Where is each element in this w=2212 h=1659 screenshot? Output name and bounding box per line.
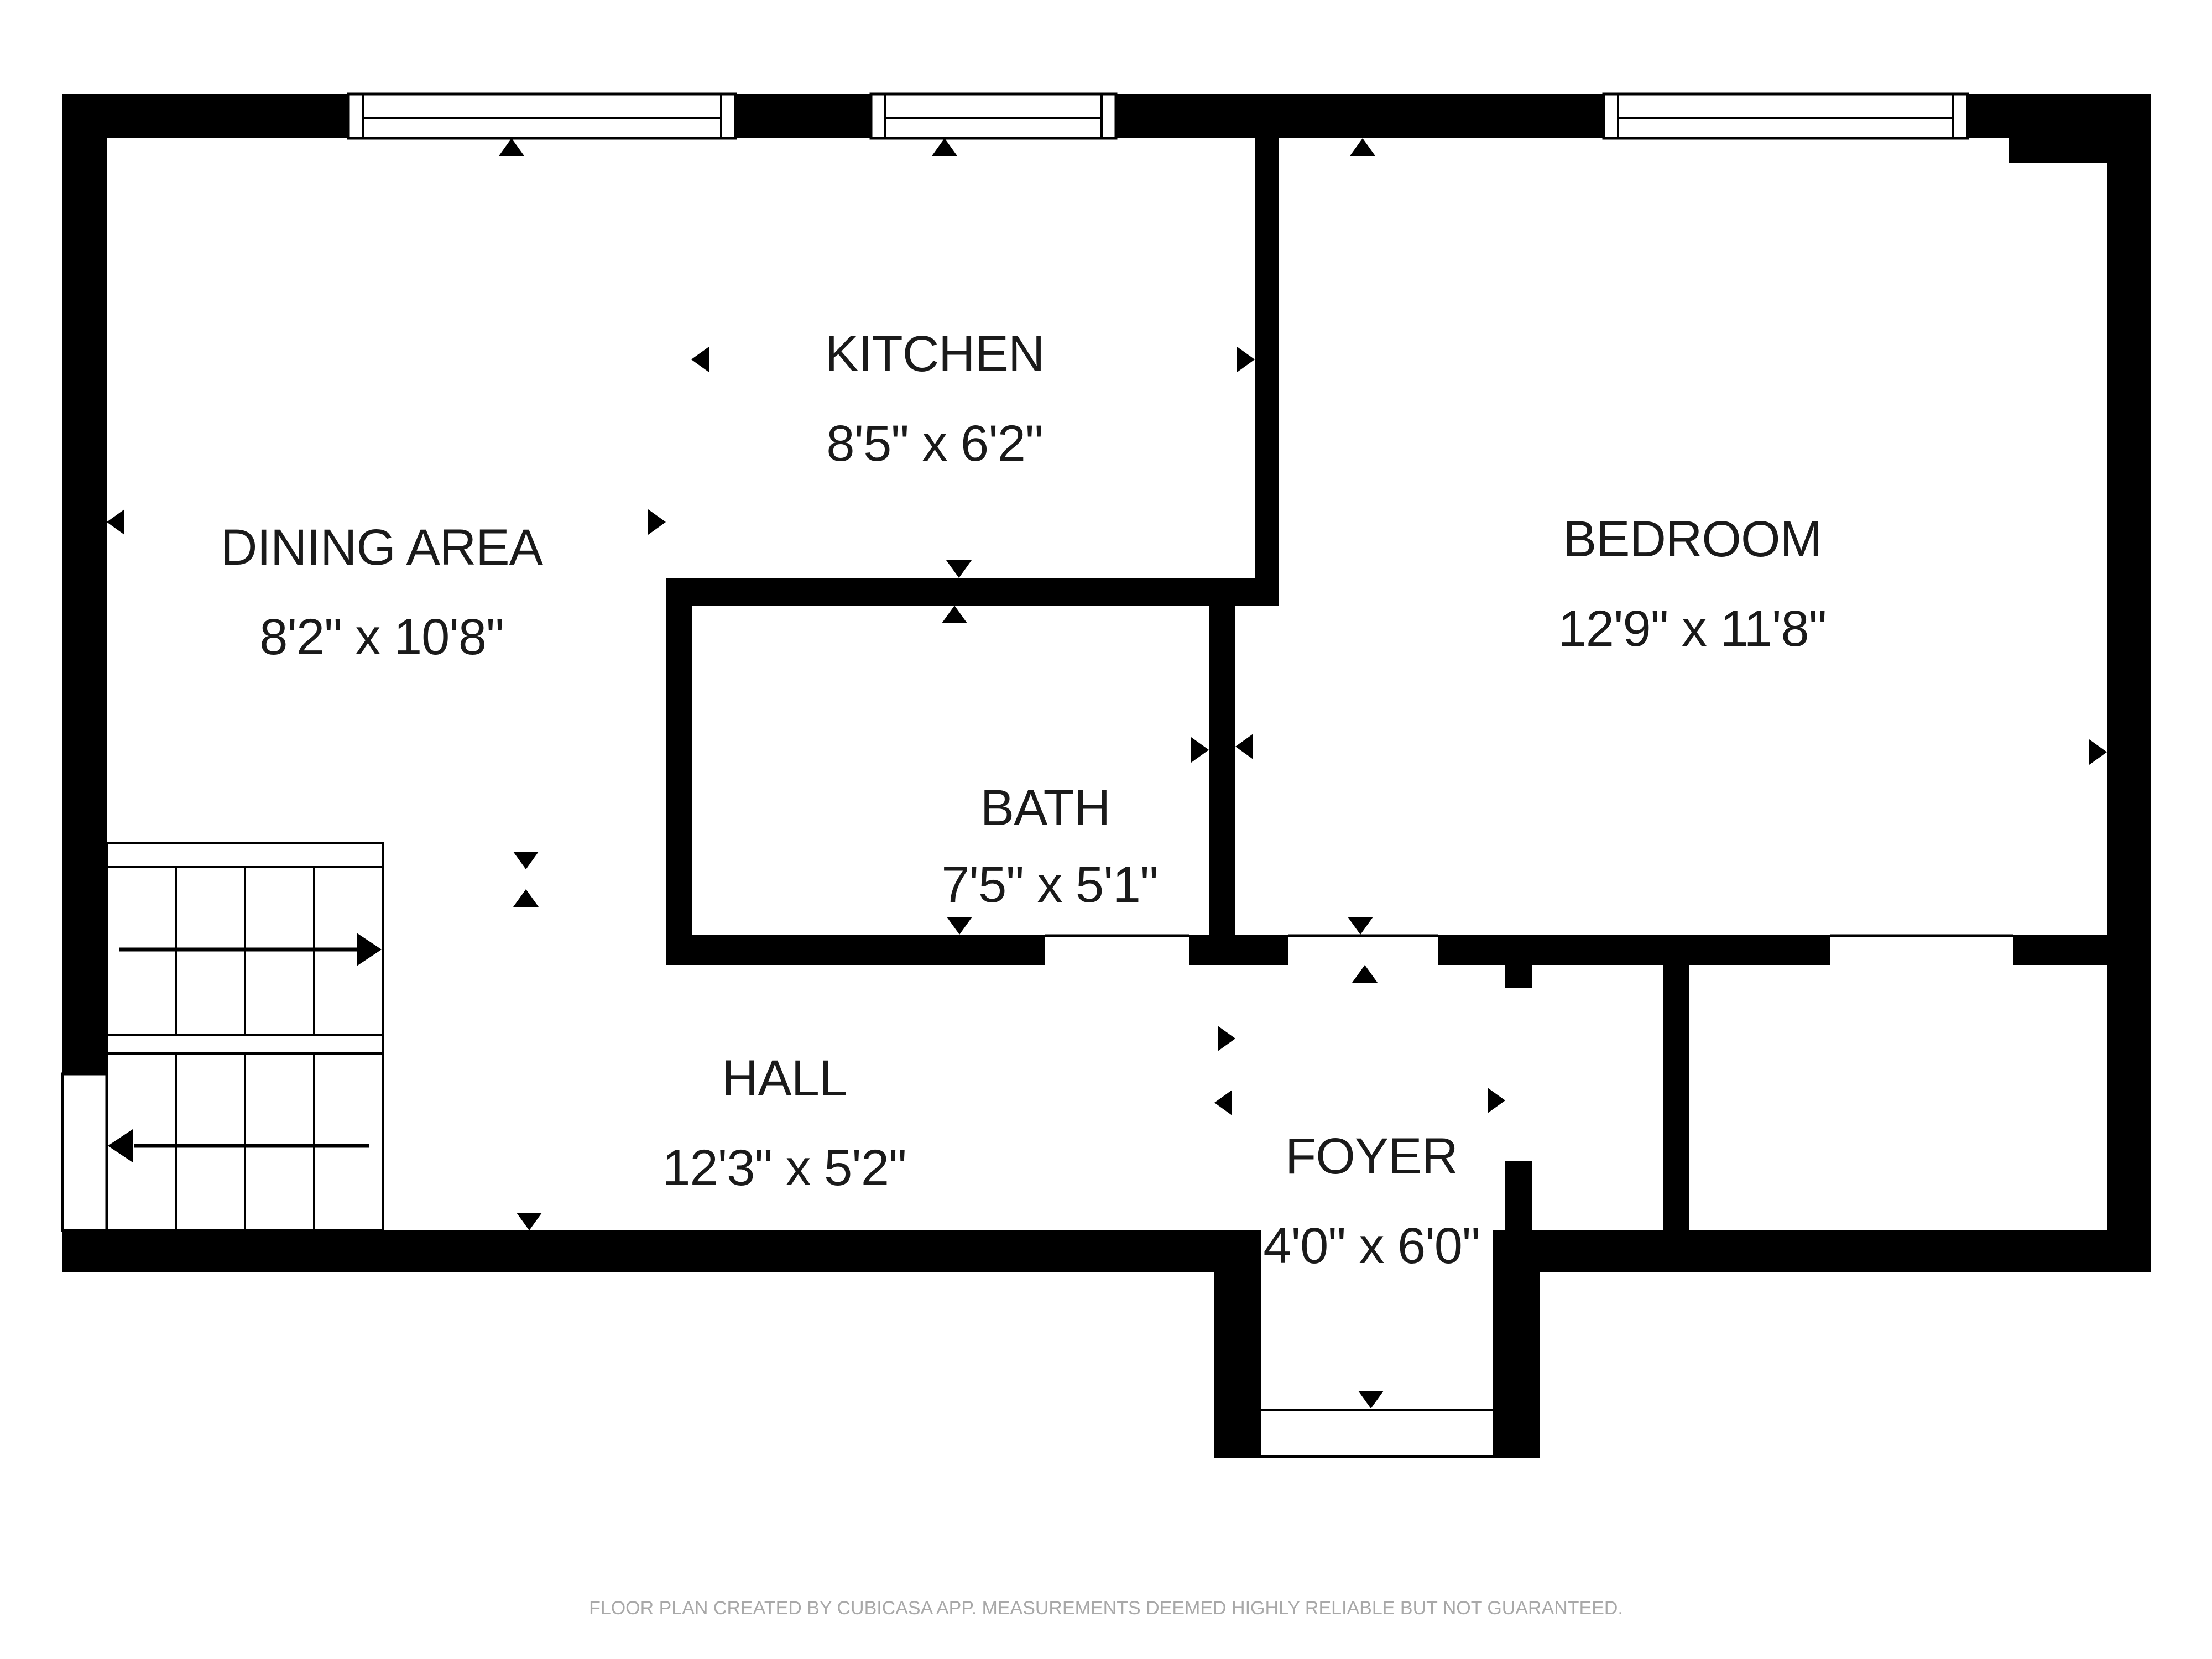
page: { "plan": { "background": "#ffffff", "wa… <box>0 0 2212 1659</box>
left-wall <box>62 94 107 1074</box>
floor-plan: KITCHEN8'5" x 6'2"DINING AREA8'2" x 10'8… <box>0 0 2212 1659</box>
bedroom-dimensions: 12'9" x 11'8" <box>1558 601 1827 657</box>
kitchen-divider-wall <box>1255 138 1279 578</box>
window-1-pane <box>348 94 735 138</box>
foyer-closet-wall-a <box>1505 965 1532 988</box>
closet-divider-wall <box>1663 965 1689 1230</box>
bath-label: BATH <box>980 780 1110 836</box>
window-2-pane <box>871 94 1116 138</box>
foyer-dimensions: 4'0" x 6'0" <box>1263 1218 1479 1274</box>
footer-credit-text: FLOOR PLAN CREATED BY CUBICASA APP. MEAS… <box>589 1598 1623 1619</box>
hall-dimensions: 12'3" x 5'2" <box>662 1140 906 1196</box>
foyer-right-wall <box>1493 1272 1540 1458</box>
bottom-wall-right <box>1493 1230 2151 1272</box>
foyer-left-wall <box>1214 1272 1261 1458</box>
dining-area-dimensions: 8'2" x 10'8" <box>259 609 503 665</box>
top-wall-mid-1 <box>735 94 871 138</box>
kitchen-dimensions: 8'5" x 6'2" <box>826 415 1042 472</box>
bedroom-label: BEDROOM <box>1563 511 1822 567</box>
foyer-closet-wall-b <box>1505 1161 1532 1230</box>
foyer-label: FOYER <box>1285 1128 1458 1185</box>
hall-label: HALL <box>722 1050 847 1107</box>
bath-left-wall <box>666 578 692 965</box>
dining-area-label: DINING AREA <box>221 519 544 576</box>
window-3-pane <box>1604 94 1968 138</box>
bath-bottom-wall <box>666 935 1045 965</box>
bath-top-wall <box>666 578 1279 606</box>
bath-dimensions: 7'5" x 5'1" <box>941 857 1157 913</box>
top-wall-mid-2 <box>1116 94 1604 138</box>
bath-tee-wall <box>1189 935 1288 965</box>
right-wall <box>2107 94 2151 1272</box>
bath-right-wall <box>1209 606 1235 965</box>
stair-window-pane <box>62 1074 107 1230</box>
bottom-wall-left <box>62 1230 1261 1272</box>
bedroom-bottom-mid <box>1438 935 1830 965</box>
bedroom-bottom-right <box>2013 935 2151 965</box>
kitchen-label: KITCHEN <box>825 326 1045 382</box>
